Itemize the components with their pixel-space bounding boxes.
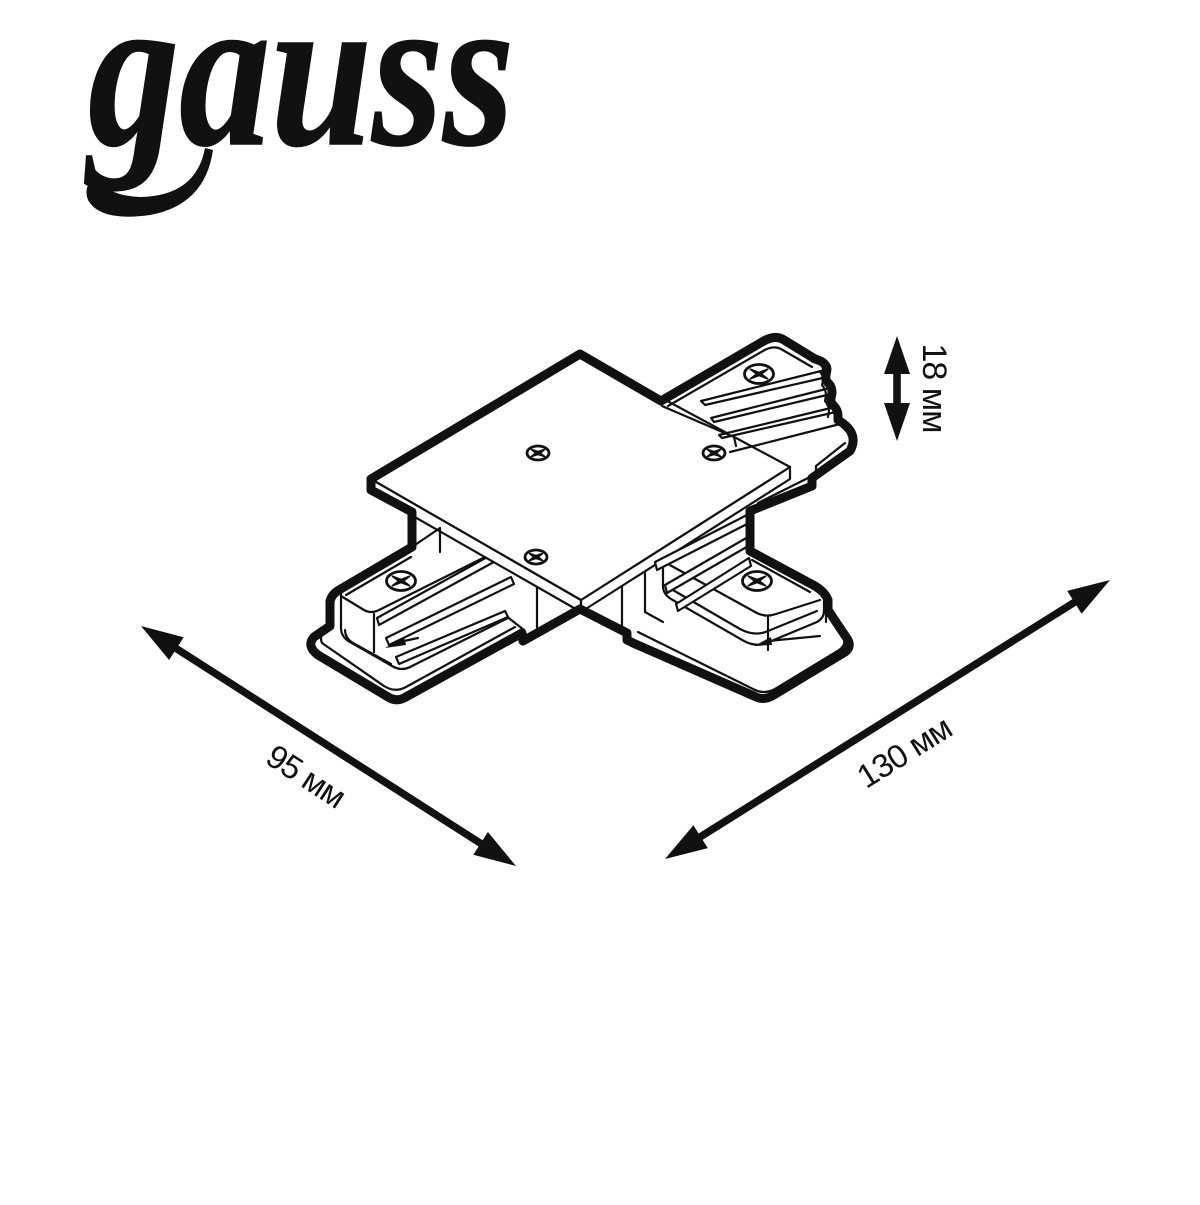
svg-text:gauss: gauss bbox=[84, 0, 514, 192]
svg-text:18 мм: 18 мм bbox=[915, 343, 953, 432]
